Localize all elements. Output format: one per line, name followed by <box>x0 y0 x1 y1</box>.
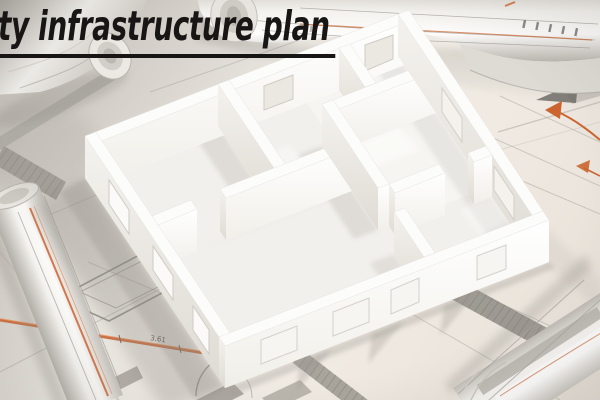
vignette-overlay <box>0 0 600 400</box>
page-title: ty infrastructure plan <box>0 2 335 58</box>
hero-image: ty infrastructure plan <box>0 0 600 400</box>
architectural-scene: 3.61 60 60 <box>0 0 600 400</box>
